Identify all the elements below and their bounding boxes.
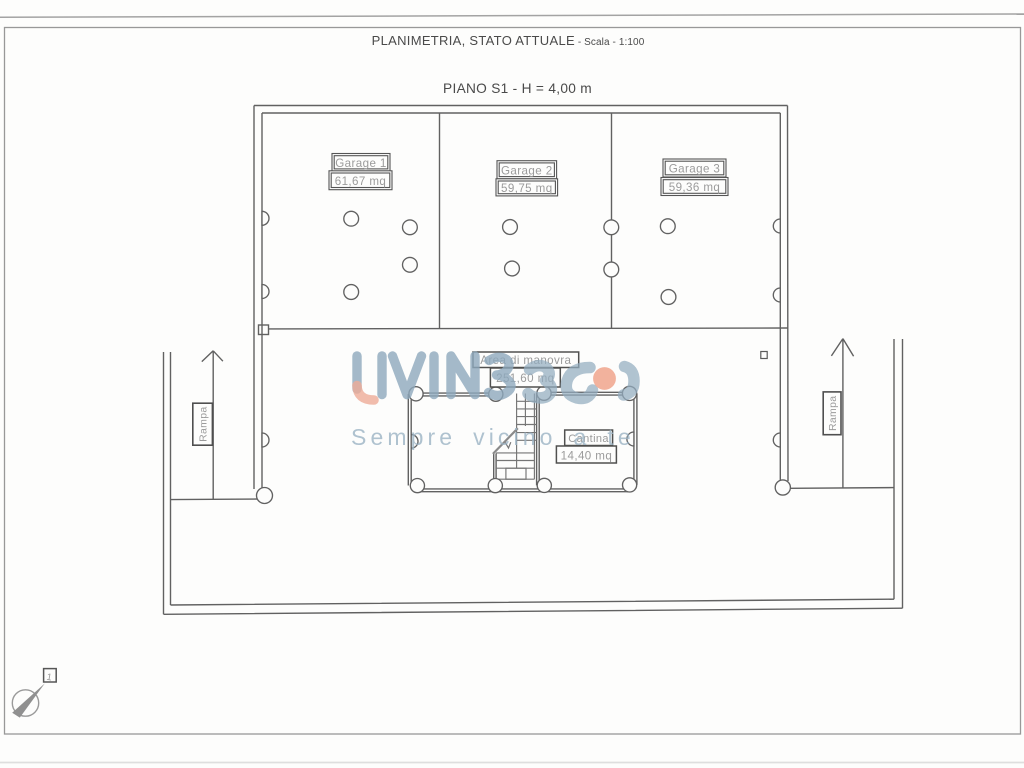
svg-text:59,36 mq: 59,36 mq [669,181,721,194]
svg-text:PIANO S1 - H = 4,00 m: PIANO S1 - H = 4,00 m [443,81,592,96]
svg-text:Garage 2: Garage 2 [501,164,553,177]
svg-text:Garage 3: Garage 3 [669,163,721,176]
svg-text:14,40 mq: 14,40 mq [561,450,613,463]
svg-text:59,75 mq: 59,75 mq [501,182,553,195]
svg-text:Rampa: Rampa [827,396,839,431]
svg-text:61,67 mq: 61,67 mq [335,175,387,188]
svg-text:Garage 1: Garage 1 [335,157,387,170]
svg-text:Sempre vicino a te: Sempre vicino a te [351,424,635,450]
svg-text:Rampa: Rampa [198,407,210,442]
